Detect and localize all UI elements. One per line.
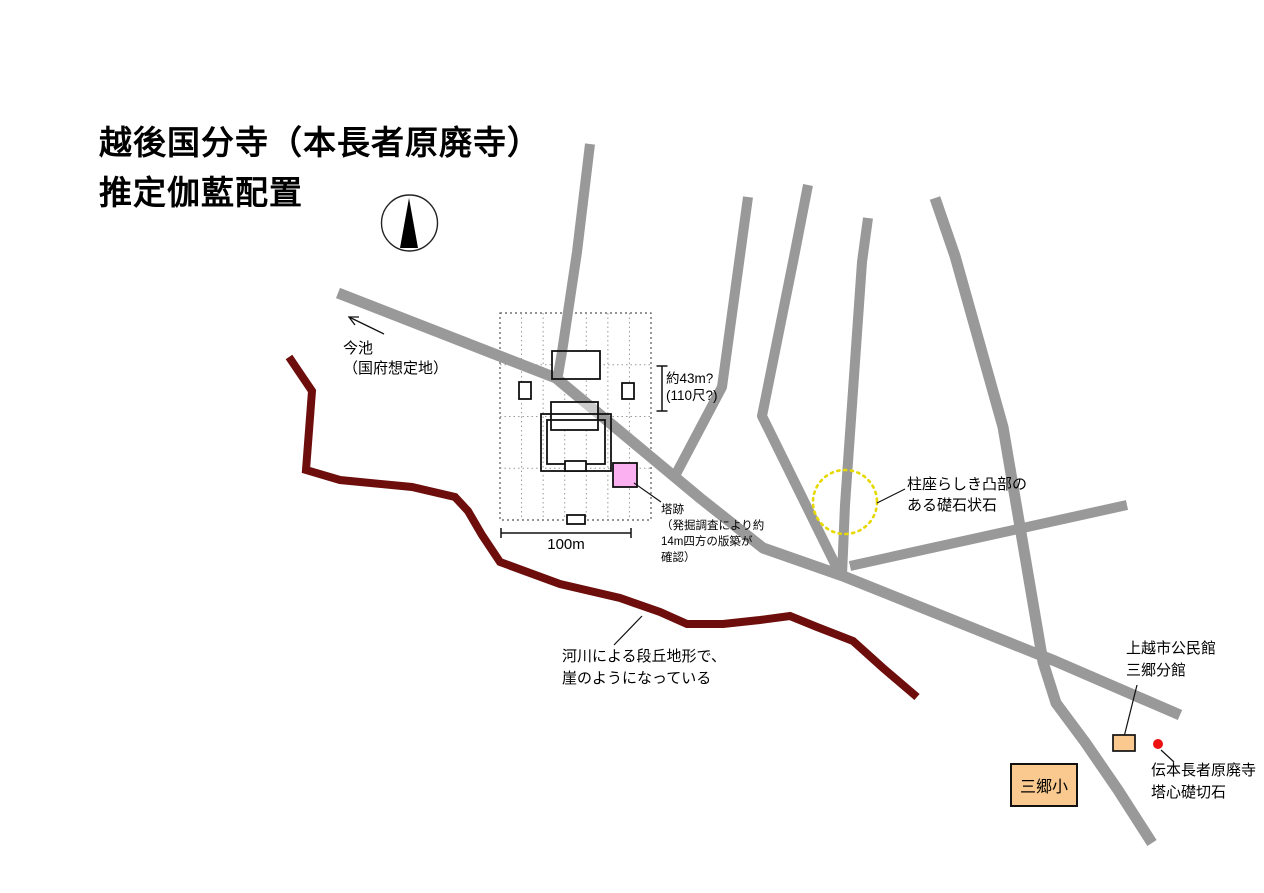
- dimension-label: 約43m? (110尺?): [666, 371, 718, 404]
- foundation-stone-label: 柱座らしき凸部の ある礎石状石: [907, 474, 1027, 516]
- side-building-east-fill: [622, 383, 634, 399]
- community-hall-label: 上越市公民館 三郷分館: [1126, 638, 1216, 682]
- sango-elementary-box: 三郷小: [1010, 763, 1078, 807]
- page-title: 越後国分寺（本長者原廃寺） 推定伽藍配置: [99, 118, 541, 218]
- scale-bar-label: 100m: [531, 536, 601, 553]
- leader-cliff: [614, 616, 642, 645]
- leader-pagoda-site: [634, 483, 661, 502]
- imaike-label: 今池 （国府想定地）: [343, 339, 448, 379]
- community-hall-building: [1113, 735, 1135, 751]
- pagoda-site-square: [613, 463, 637, 487]
- road-north-4: [842, 218, 868, 575]
- gate-south: [567, 515, 585, 524]
- sango-elementary-label: 三郷小: [1020, 773, 1068, 797]
- building-overlay-layer: [551, 402, 598, 430]
- leader-foundation-stone: [877, 489, 905, 503]
- pagoda-site-label: 塔跡 （発掘調査により約 14m四方の版築が 確認）: [661, 502, 764, 566]
- road-north-3: [762, 185, 838, 570]
- center-stone-marker: [1153, 739, 1163, 749]
- imaike-arrow-line: [349, 317, 384, 334]
- road-north-2: [676, 197, 748, 474]
- center-stone-label: 伝本長者原廃寺 塔心礎切石: [1151, 760, 1256, 804]
- road-north-1: [557, 144, 590, 381]
- side-building-west-fill: [519, 382, 531, 399]
- hall-main-overlay: [551, 402, 598, 430]
- road-layer: [338, 144, 1180, 843]
- site-map-page: 越後国分寺（本長者原廃寺） 推定伽藍配置 今池 （国府想定地） 約43m? (1…: [0, 0, 1264, 893]
- cliff-label: 河川による段丘地形で、 崖のようになっている: [562, 646, 726, 690]
- gate-middle: [565, 461, 586, 471]
